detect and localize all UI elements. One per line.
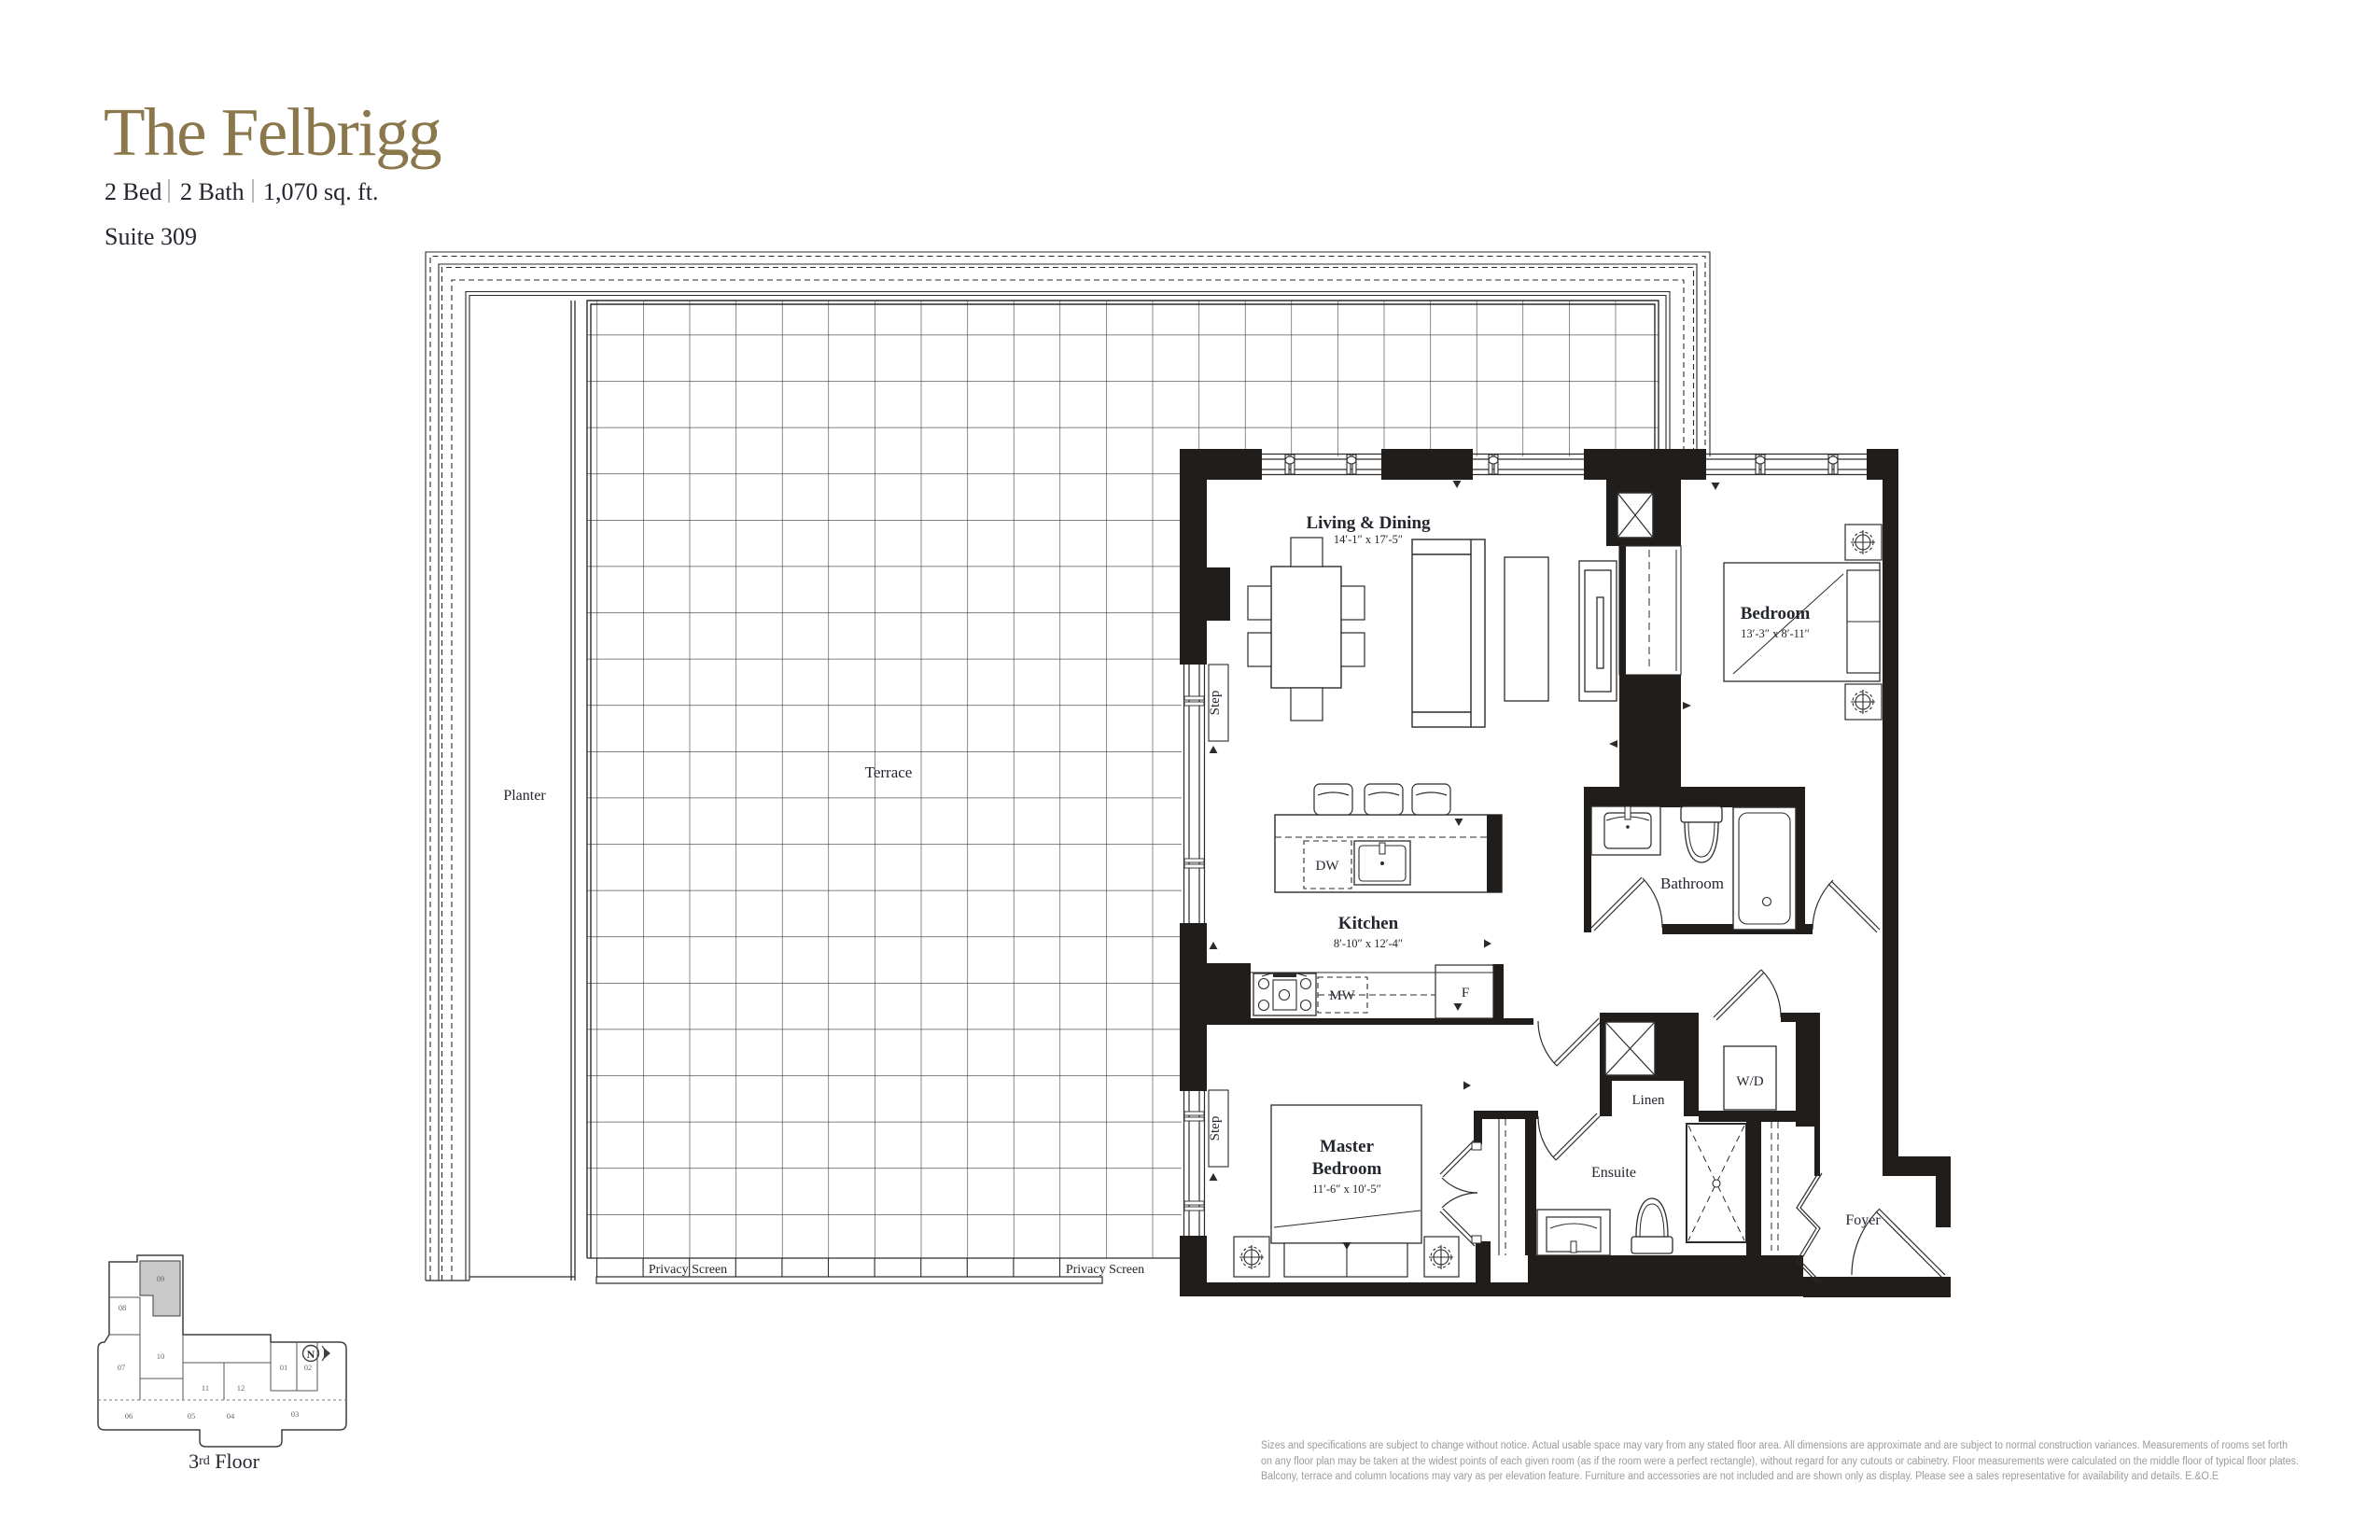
svg-text:2 Bath: 2 Bath [180,178,245,205]
svg-text:MW: MW [1329,988,1355,1003]
svg-text:Bedroom: Bedroom [1741,604,1811,623]
svg-text:05: 05 [188,1411,196,1421]
svg-text:Privacy Screen: Privacy Screen [649,1263,727,1277]
svg-text:Step: Step [1208,1116,1223,1141]
svg-text:DW: DW [1316,859,1340,874]
svg-text:13′-3″ x 8′-11″: 13′-3″ x 8′-11″ [1741,627,1810,640]
svg-text:Planter: Planter [503,788,546,804]
svg-text:N: N [307,1348,315,1361]
svg-text:on any floor plan may be taken: on any floor plan may be taken at the wi… [1261,1456,2299,1467]
svg-text:8′-10″ x 12′-4″: 8′-10″ x 12′-4″ [1334,937,1403,950]
svg-text:04: 04 [227,1411,235,1421]
svg-text:14′-1″ x 17′-5″: 14′-1″ x 17′-5″ [1334,533,1403,546]
svg-text:Privacy Screen: Privacy Screen [1066,1263,1144,1277]
svg-text:Suite 309: Suite 309 [105,223,197,250]
svg-text:06: 06 [125,1411,133,1421]
svg-text:F: F [1462,986,1469,1001]
svg-text:11′-6″ x 10′-5″: 11′-6″ x 10′-5″ [1312,1183,1381,1196]
svg-text:Ensuite: Ensuite [1591,1165,1636,1181]
svg-text:Terrace: Terrace [865,763,913,781]
svg-text:The Felbrigg: The Felbrigg [104,94,441,170]
svg-text:12: 12 [237,1383,245,1393]
svg-text:Kitchen: Kitchen [1338,914,1399,933]
svg-text:Bathroom: Bathroom [1660,875,1724,892]
svg-text:01: 01 [280,1363,288,1372]
svg-text:Sizes and specifications are s: Sizes and specifications are subject to … [1261,1440,2288,1451]
svg-text:03: 03 [291,1409,300,1419]
svg-text:08: 08 [119,1303,127,1312]
svg-text:Master: Master [1320,1137,1375,1156]
svg-text:Balcony, terrace and column lo: Balcony, terrace and column locations ma… [1261,1471,2219,1482]
svg-text:Foyer: Foyer [1845,1212,1881,1228]
svg-text:1,070 sq. ft.: 1,070 sq. ft. [263,178,379,205]
svg-text:Linen: Linen [1632,1093,1665,1108]
svg-text:2 Bed: 2 Bed [105,178,161,205]
svg-text:Step: Step [1208,691,1223,716]
svg-text:11: 11 [202,1383,209,1393]
svg-text:Living & Dining: Living & Dining [1306,513,1431,533]
svg-text:3rd Floor: 3rd Floor [189,1449,260,1473]
svg-text:02: 02 [304,1363,313,1372]
svg-text:07: 07 [118,1363,126,1372]
svg-text:10: 10 [157,1351,165,1361]
svg-text:Bedroom: Bedroom [1312,1159,1382,1179]
svg-text:09: 09 [157,1274,165,1283]
svg-text:W/D: W/D [1736,1074,1763,1089]
